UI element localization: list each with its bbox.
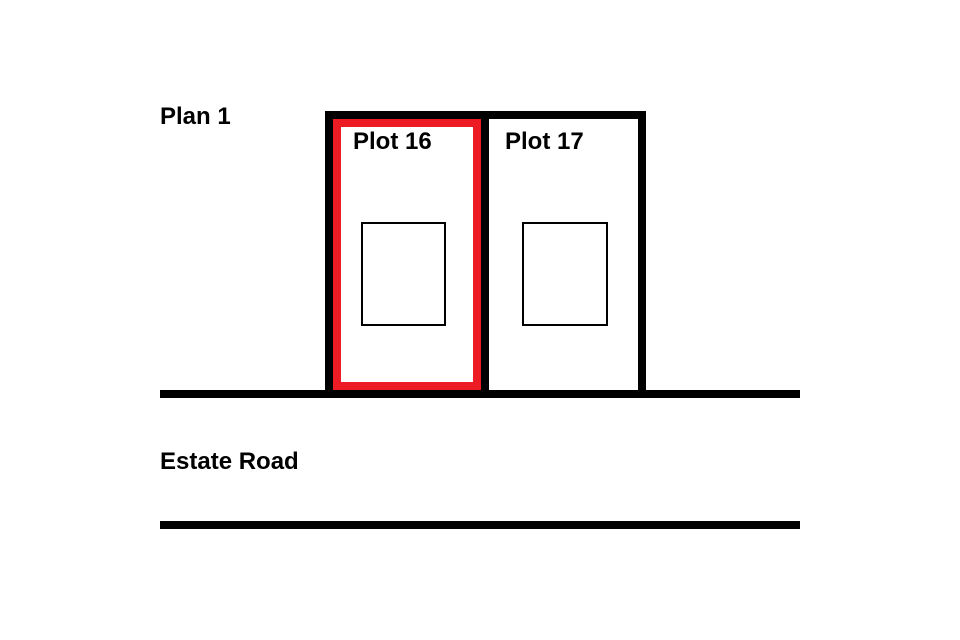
plot-16-label: Plot 16: [353, 130, 432, 154]
plot-17-label: Plot 17: [505, 130, 584, 154]
road-label: Estate Road: [160, 450, 299, 474]
plan-title: Plan 1: [160, 105, 231, 129]
plot-16-area[interactable]: Plot 16: [333, 119, 481, 390]
road-near-edge-line: [160, 390, 800, 398]
site-plan: Plan 1 Plot 16 Plot 17 Estate Road: [0, 0, 960, 640]
plot-16-building-footprint: [361, 222, 446, 326]
plot-16-left-boundary: [325, 111, 333, 398]
road-far-edge-line: [160, 521, 800, 529]
plot-17-right-boundary: [638, 111, 646, 398]
plot-divider-boundary: [481, 111, 489, 398]
plot-17-area[interactable]: Plot 17: [489, 119, 638, 390]
plot-17-building-footprint: [522, 222, 608, 326]
